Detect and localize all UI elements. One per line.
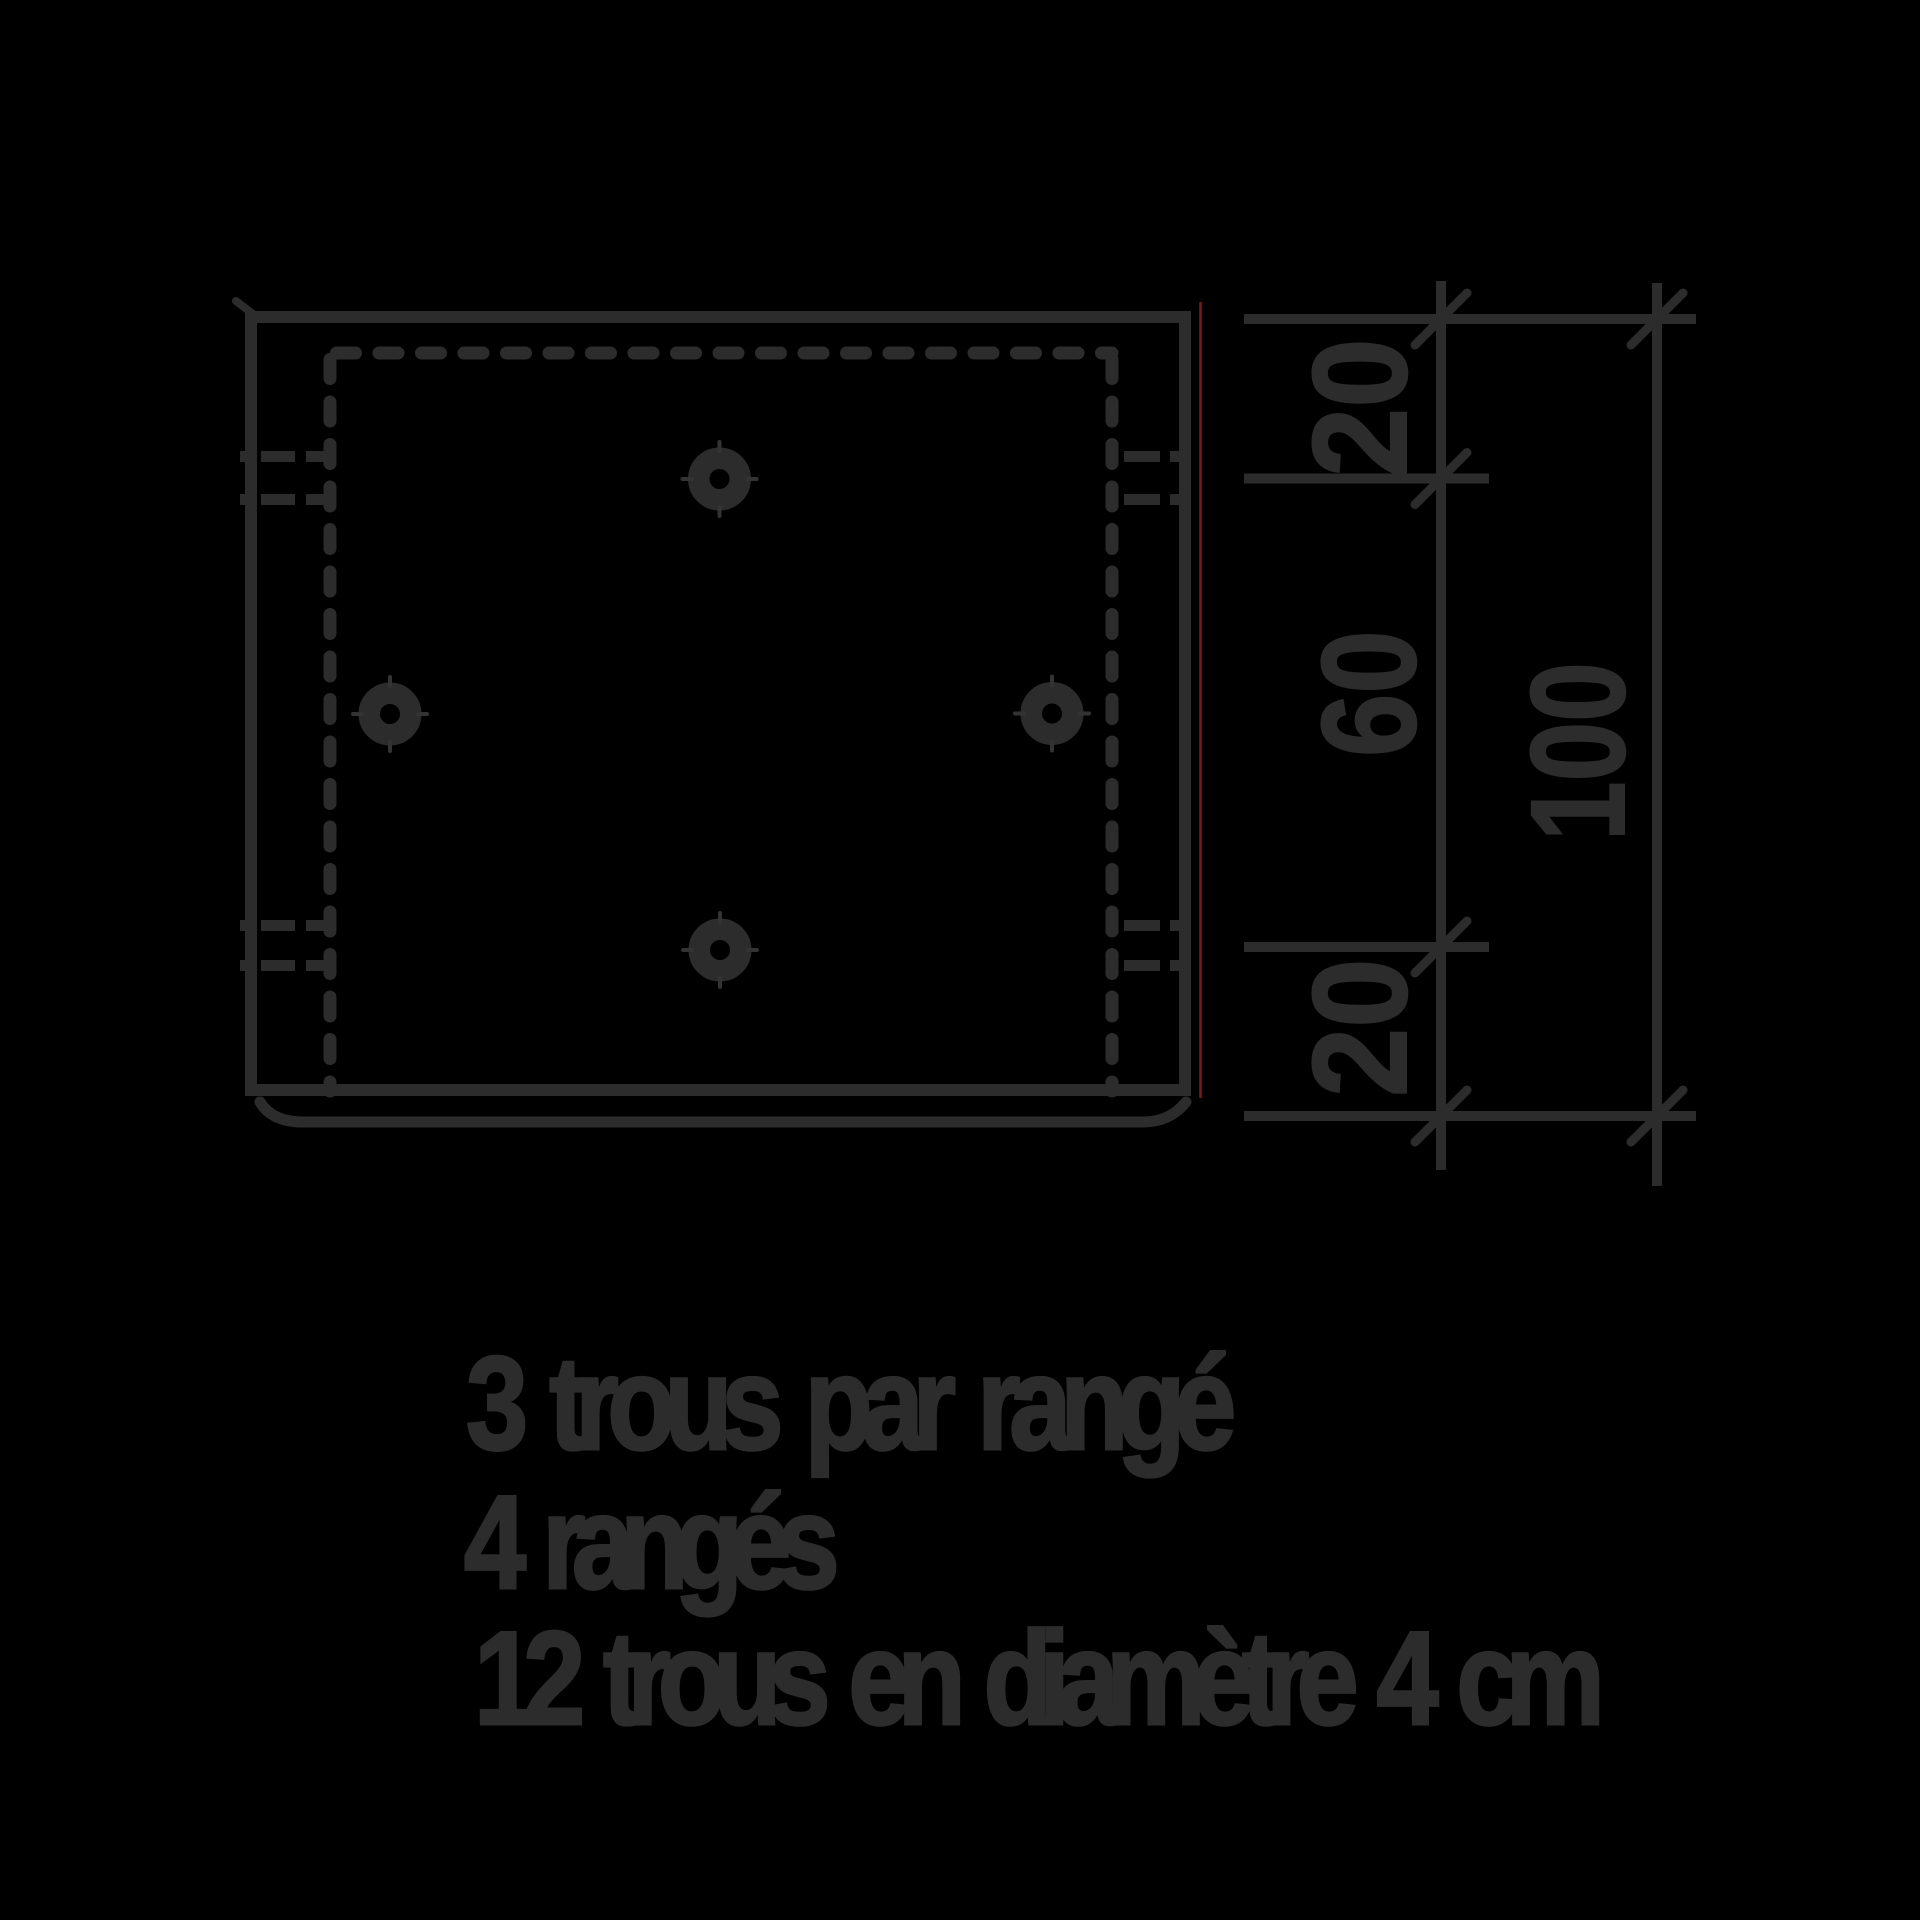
svg-text:20: 20 — [1286, 338, 1435, 477]
svg-text:4 rangés: 4 rangés — [464, 1469, 836, 1617]
svg-text:3 trous par rangé: 3 trous par rangé — [466, 1330, 1233, 1478]
svg-text:100: 100 — [1503, 662, 1653, 841]
svg-text:12 trous en diamètre 4 cm: 12 trous en diamètre 4 cm — [474, 1605, 1598, 1753]
svg-text:60: 60 — [1294, 630, 1444, 757]
svg-text:20: 20 — [1286, 958, 1435, 1097]
